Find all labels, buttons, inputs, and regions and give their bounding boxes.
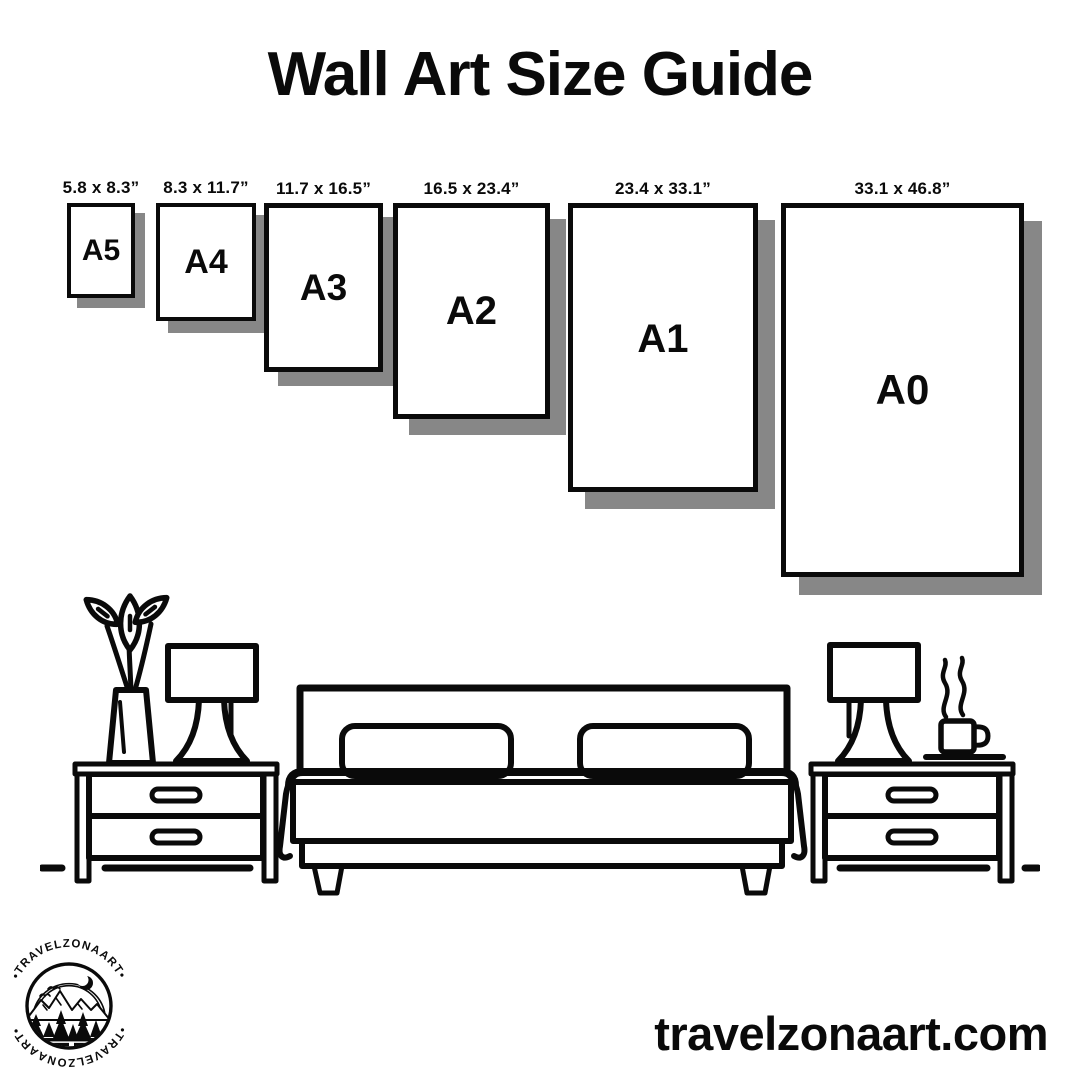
size-label-a3: A3 — [300, 267, 347, 309]
brand-logo: •TRAVELZONAART• •TRAVELZONAART• — [2, 936, 136, 1070]
table-lamp-icon — [830, 645, 918, 761]
page-title: Wall Art Size Guide — [0, 44, 1080, 106]
size-frame-a1: 23.4 x 33.1” A1 — [568, 203, 758, 492]
bedroom-illustration — [40, 590, 1040, 900]
size-label-a4: A4 — [184, 243, 227, 282]
size-label-a0: A0 — [876, 366, 930, 414]
nightstand-icon — [75, 764, 277, 881]
logo-arc-text-top: •TRAVELZONAART• — [10, 938, 128, 981]
size-dimensions-a0: 33.1 x 46.8” — [855, 179, 951, 199]
size-dimensions-a1: 23.4 x 33.1” — [615, 179, 711, 199]
size-label-a1: A1 — [637, 317, 688, 362]
size-label-a5: A5 — [82, 234, 120, 268]
size-frame-a2: 16.5 x 23.4” A2 — [393, 203, 550, 419]
size-dimensions-a3: 11.7 x 16.5” — [276, 179, 371, 199]
steaming-coffee-cup-icon — [926, 658, 1003, 757]
size-frame-a3: 11.7 x 16.5” A3 — [264, 203, 383, 372]
size-frame-a0: 33.1 x 46.8” A0 — [781, 203, 1024, 577]
wall-art-size-guide-poster: Wall Art Size Guide 5.8 x 8.3” A5 8.3 x … — [0, 0, 1080, 1080]
plant-vase-icon — [82, 592, 171, 763]
website-url: travelzonaart.com — [654, 1006, 1048, 1061]
table-lamp-icon — [168, 646, 256, 761]
mountains-icon — [26, 991, 110, 1020]
size-dimensions-a2: 16.5 x 23.4” — [424, 179, 520, 199]
size-dimensions-a5: 5.8 x 8.3” — [63, 178, 140, 198]
nightstand-icon — [811, 764, 1013, 881]
size-frame-a5: 5.8 x 8.3” A5 — [67, 203, 135, 298]
double-bed-icon — [280, 688, 805, 893]
size-dimensions-a4: 8.3 x 11.7” — [163, 178, 248, 198]
size-frame-a4: 8.3 x 11.7” A4 — [156, 203, 256, 321]
size-label-a2: A2 — [446, 289, 497, 334]
